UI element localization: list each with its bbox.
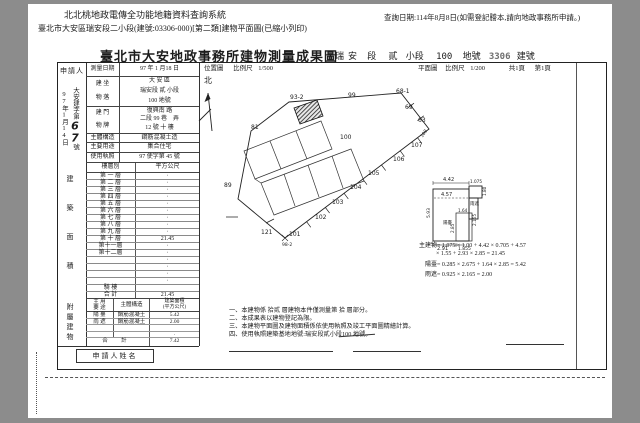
building-number: 3306 <box>489 52 511 62</box>
land-label: 地號 <box>463 51 481 61</box>
dim-label: 2.165 <box>472 214 477 226</box>
subsection-label: 小段 <box>406 51 424 61</box>
lot-label: 102 <box>315 214 327 221</box>
system-title: 北北桃地政電傳全功能地籍資料查詢系統 <box>64 10 226 20</box>
survey-result-box: 申請人 大安建字第67號 97年1月14日 測量日期 97 年 1 月18 日 … <box>57 62 607 370</box>
lot-label: 69 <box>405 104 413 111</box>
note-2: 二、本成果表以建物登記為限。 <box>229 315 529 323</box>
lot-label: 103 <box>332 199 344 206</box>
signature-line <box>229 351 333 352</box>
canopy-label: 雨遮 <box>470 200 479 207</box>
lot-label: 105 <box>368 170 380 177</box>
dim-label: 5.93 <box>426 208 432 218</box>
lot-label: 93-2 <box>290 94 304 101</box>
lot-label: 104 <box>350 184 362 191</box>
screenshot-root: { "colors":{"background":"#8c8c8c","pape… <box>0 0 640 423</box>
floor-plan-drawing: 4.42 1.075 4.57 5.93 2.91 1.855 1.64 2.8… <box>426 177 487 252</box>
signature-line <box>353 351 421 352</box>
note-1: 一、本建物係 拾貳 層建物本件僅測量第 拾 層部分。 <box>229 307 529 315</box>
balcony-label: 陽臺 <box>443 219 452 226</box>
note-3: 三、本建物平面圖及建物面積係依使用執照及竣工平面圖精繪計算。 <box>229 323 529 331</box>
calc-balcony: 陽臺= 0.285 × 2.675 + 1.64 × 2.85 = 5.42 <box>425 262 526 269</box>
lot-label: 101 <box>289 231 301 238</box>
parcel-ticks <box>226 103 424 227</box>
lot-label-subject: 100 <box>340 134 352 141</box>
binding-dotted-line <box>36 352 37 414</box>
lot-label: 81 <box>251 124 259 131</box>
lot-label: 89 <box>224 182 232 189</box>
query-date: 查詢日期:114年8月8日(如需登記謄本,請向地政事務所申請。) <box>384 12 580 23</box>
vertex-mark <box>282 235 288 241</box>
doc-title-right: 瑞安 段 貳 小段 100 地號 3306 建號 <box>335 51 535 62</box>
location-map: 93-2 99 68-1 69 63 108 107 106 105 104 1… <box>224 88 429 248</box>
dim-label: 1.075 <box>470 179 482 184</box>
subsection-name: 貳 <box>389 51 398 61</box>
signature-line <box>506 344 564 345</box>
print-subtitle: 臺北市大安區瑞安段二小段(建號:03306-000)[第二類]建物平面圖(已縮小… <box>38 24 307 33</box>
lot-label: 68-1 <box>396 88 410 95</box>
lot-label: 121 <box>261 229 273 236</box>
building-label: 建號 <box>517 51 535 61</box>
lot-label: 106 <box>393 156 405 163</box>
section-name: 瑞安 <box>335 51 361 61</box>
calc-canopy: 雨遮= 0.925 × 2.165 = 2.00 <box>425 272 492 279</box>
land-number: 100 <box>436 52 452 62</box>
dim-label: 4.57 <box>441 192 452 198</box>
subject-building-hatched <box>294 100 323 124</box>
dim-label: 4.42 <box>443 177 454 183</box>
dim-label: 1.80 <box>482 186 487 196</box>
fold-dashed-line <box>45 377 605 378</box>
calc-main-2: × 1.55 + 2.93 × 2.85 = 21.45 <box>436 251 505 258</box>
note-4: 四、使用執照建築基地地號:瑞安段貳小段100 地號。 <box>229 331 529 339</box>
section-label: 段 <box>367 51 380 61</box>
lot-labels: 93-2 99 68-1 69 63 108 107 106 105 104 1… <box>224 88 429 248</box>
lot-label: 98-2 <box>282 242 292 248</box>
lot-label: 99 <box>348 92 356 99</box>
lot-label: 107 <box>411 142 423 149</box>
dim-label: 1.64 <box>458 208 468 213</box>
notes-block: 一、本建物係 拾貳 層建物本件僅測量第 拾 層部分。 二、本成果表以建物登記為限… <box>229 307 529 339</box>
north-arrow-icon <box>199 93 212 131</box>
calc-main-1: 主建物= 1.075 × 1.00 + 4.42 × 0.705 + 4.57 <box>419 243 526 250</box>
lot-label: 63 <box>418 117 426 124</box>
